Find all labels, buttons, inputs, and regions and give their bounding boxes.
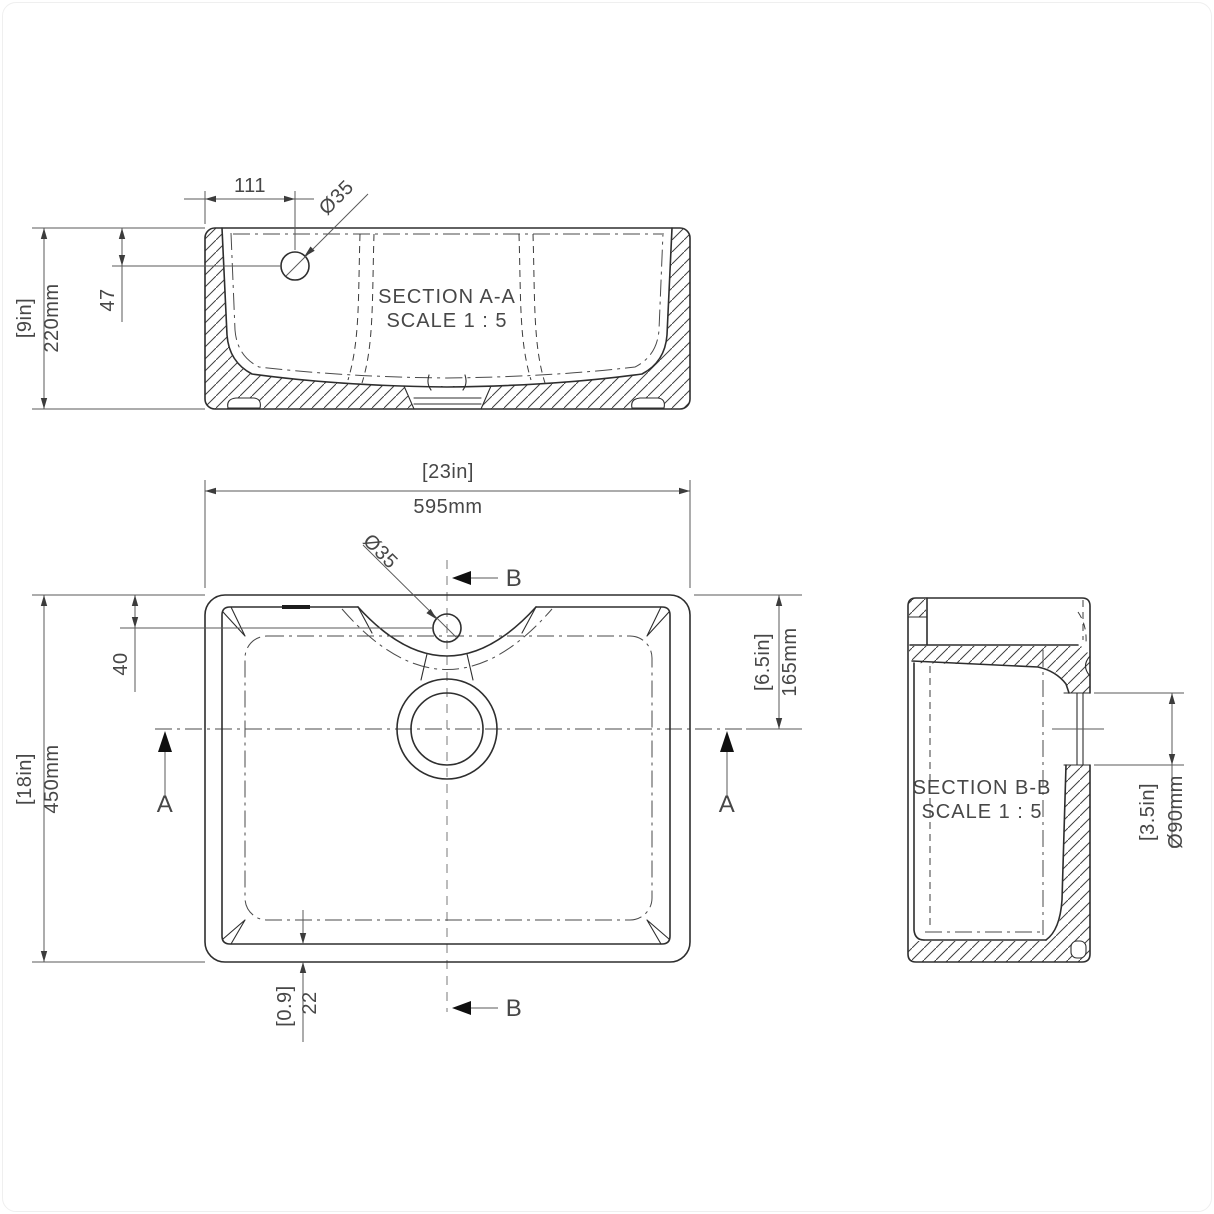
- aa-hole-leader-arrow: [304, 247, 315, 258]
- plan-corner-facets: [223, 607, 669, 944]
- bb-rim-hatch: [909, 646, 1090, 693]
- aa-foot-left: [228, 398, 261, 408]
- section-a-mark-left: A: [157, 731, 174, 818]
- section-aa-dimensions: 111 Ø35 47 [9in] 220mm: [14, 175, 358, 409]
- section-b-label-bottom: B: [506, 995, 523, 1022]
- plan-dim-hole-dia: Ø35: [358, 530, 401, 573]
- aa-drain-recess: [428, 375, 431, 390]
- aa-dim-hole-dia: Ø35: [315, 176, 358, 219]
- plan-dim-width-in: [23in]: [422, 461, 474, 483]
- section-bb-view: SECTION B-B SCALE 1 : 5: [908, 598, 1104, 962]
- section-aa-view: SECTION A-A SCALE 1 : 5: [205, 194, 690, 409]
- section-b-mark-bottom: B: [452, 995, 522, 1022]
- plan-dim-drain-mm: 165mm: [779, 627, 801, 696]
- aa-hidden-channel-right: [519, 234, 531, 380]
- aa-foot-right: [632, 398, 665, 408]
- plan-dim-40: 40: [110, 652, 132, 675]
- plan-dim-width-mm: 595mm: [413, 496, 482, 518]
- bb-title: SECTION B-B: [913, 777, 1052, 799]
- sink-technical-drawing: SECTION A-A SCALE 1 : 5 111 Ø35 47: [0, 0, 1214, 1214]
- aa-dim-height-mm: 220mm: [41, 283, 63, 352]
- plan-view: [155, 545, 742, 1012]
- plan-dim-height-in: [18in]: [14, 753, 36, 805]
- aa-scale: SCALE 1 : 5: [386, 310, 507, 332]
- plan-dim-height-mm: 450mm: [41, 744, 63, 813]
- technical-drawing-page: SECTION A-A SCALE 1 : 5 111 Ø35 47: [0, 0, 1214, 1214]
- plan-hole-leader-arrow: [426, 609, 437, 620]
- bb-scale: SCALE 1 : 5: [921, 801, 1042, 823]
- section-bb-dimensions: [3.5in] Ø90mm: [1094, 693, 1187, 849]
- plan-dim-wall-in: [0.9]: [274, 985, 296, 1026]
- aa-title: SECTION A-A: [378, 286, 516, 308]
- section-a-label-left: A: [157, 791, 174, 818]
- bb-foot-pad: [1071, 941, 1086, 958]
- plan-dimensions: [23in] 595mm Ø35 40 [18in] 450mm [6.5i: [14, 461, 802, 1042]
- plan-dim-drain-in: [6.5in]: [752, 633, 774, 691]
- bb-dim-drain-in: [3.5in]: [1137, 783, 1159, 841]
- section-b-label-top: B: [506, 565, 523, 592]
- section-b-mark-top: B: [452, 565, 522, 592]
- bb-block-hatch: [909, 599, 926, 617]
- section-a-mark-right: A: [719, 731, 736, 818]
- aa-dim-height-in: [9in]: [14, 298, 36, 338]
- bb-dim-drain-mm: Ø90mm: [1165, 775, 1187, 849]
- section-a-label-right: A: [719, 791, 736, 818]
- aa-dim-47: 47: [97, 288, 119, 311]
- aa-dim-111: 111: [234, 175, 266, 197]
- aa-hidden-channel-left: [348, 234, 360, 380]
- plan-inner-rim: [222, 607, 670, 944]
- plan-dim-wall-mm: 22: [299, 991, 321, 1014]
